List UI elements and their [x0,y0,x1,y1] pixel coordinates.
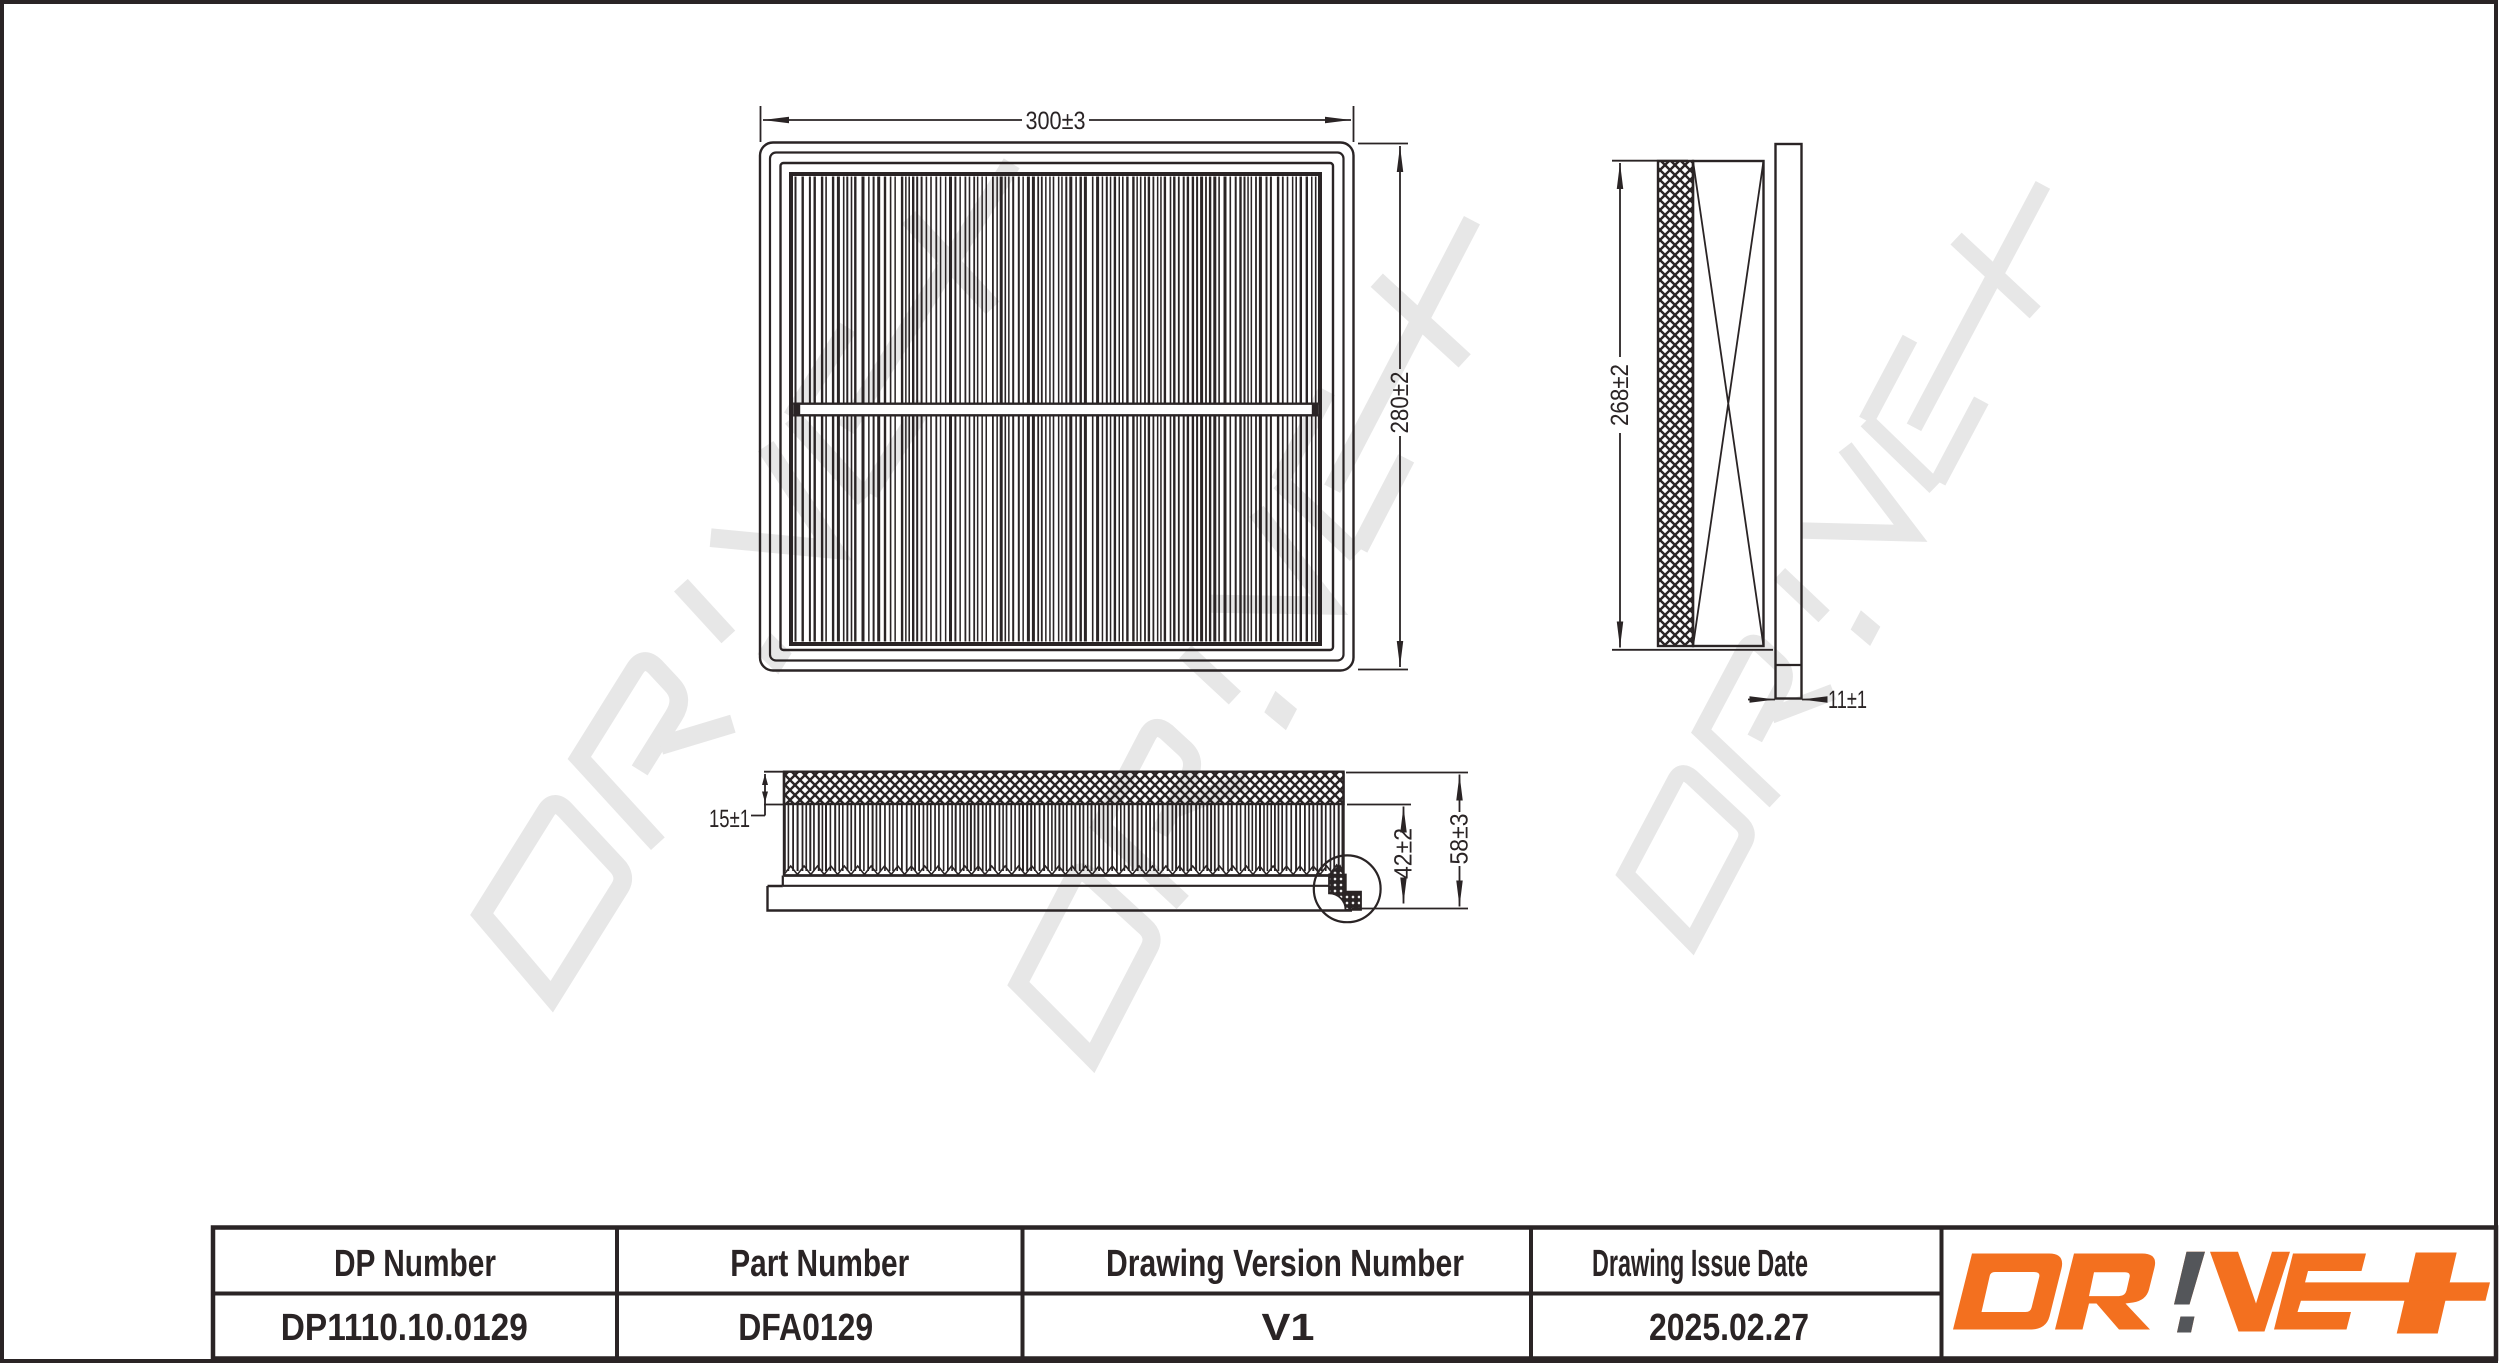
svg-text:15±1: 15±1 [709,805,750,833]
svg-text:11±1: 11±1 [1828,686,1867,714]
svg-text:280±2: 280±2 [1386,372,1414,434]
svg-text:Part Number: Part Number [730,1243,909,1285]
svg-text:300±3: 300±3 [1026,107,1086,135]
svg-text:2025.02.27: 2025.02.27 [1649,1307,1809,1349]
svg-text:DP Number: DP Number [334,1243,496,1285]
svg-text:DFA0129: DFA0129 [738,1307,873,1349]
svg-text:Drawing Version Number: Drawing Version Number [1106,1243,1464,1285]
svg-text:42±2: 42±2 [1390,828,1418,879]
svg-text:58±3: 58±3 [1446,814,1474,865]
svg-text:DP1110.10.0129: DP1110.10.0129 [281,1307,528,1349]
svg-text:V1: V1 [1262,1307,1315,1349]
svg-text:268±2: 268±2 [1606,364,1634,426]
svg-text:Drawing Issue Date: Drawing Issue Date [1592,1243,1808,1285]
